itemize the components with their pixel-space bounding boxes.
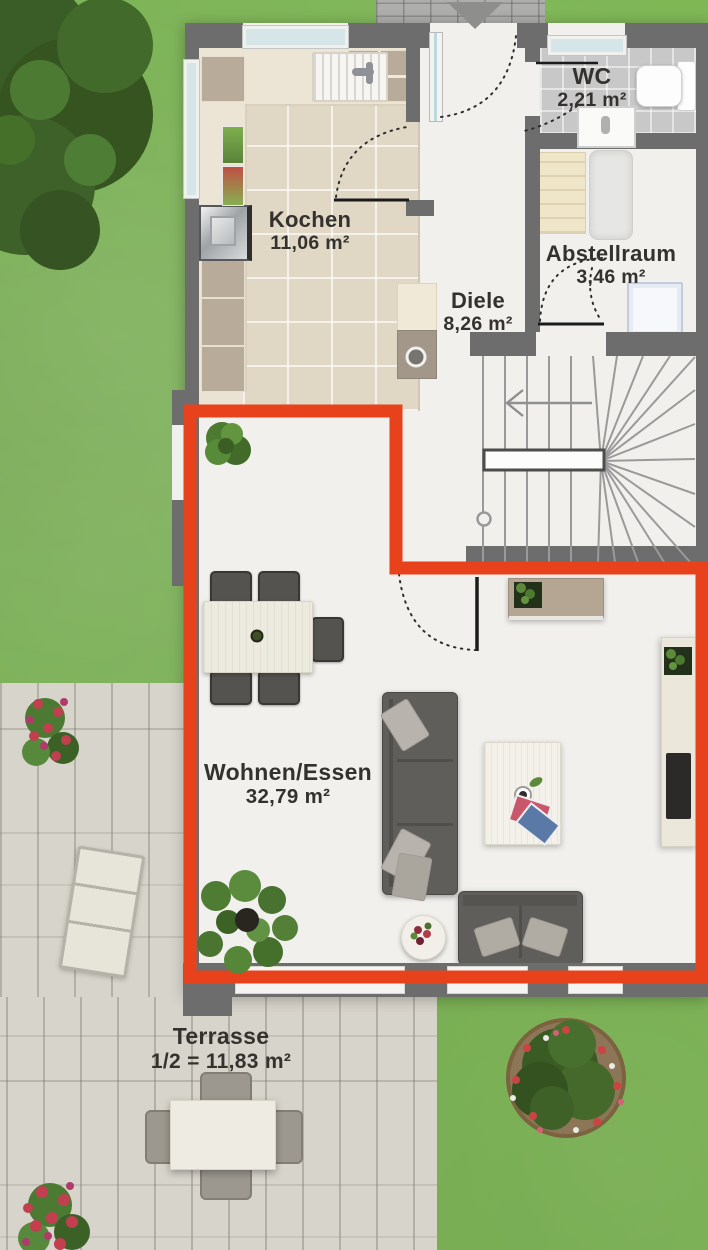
kitchen-cabinet xyxy=(201,56,245,102)
sofa-cushion-split xyxy=(397,823,453,826)
sofa-pillow xyxy=(391,852,432,901)
wall-top xyxy=(517,23,548,48)
wall-stub-outer xyxy=(172,390,185,425)
window-living-left xyxy=(172,425,185,500)
room-label-abstellraum: Abstellraum 3,46 m² xyxy=(546,242,676,288)
room-label-diele: Diele 8,26 m² xyxy=(443,289,512,335)
stove-burner xyxy=(210,216,236,246)
sideboard xyxy=(508,578,604,620)
room-name: Kochen xyxy=(269,208,351,233)
room-area: 2,21 m² xyxy=(557,90,626,112)
window-terrace xyxy=(568,966,623,994)
dining-chair xyxy=(258,670,300,705)
window-kitchen-top xyxy=(243,26,348,48)
room-name: Wohnen/Essen xyxy=(204,760,372,786)
sofa-cushion-split xyxy=(519,906,522,958)
wall-kitchen-stub xyxy=(406,200,434,216)
room-area: 11,06 m² xyxy=(269,233,351,255)
room-label-kochen: Kochen 11,06 m² xyxy=(269,208,351,254)
room-area: 32,79 m² xyxy=(204,786,372,809)
tv xyxy=(666,753,691,819)
wall-kitchen-hall xyxy=(406,46,420,122)
washbasin-tap-icon xyxy=(601,116,610,134)
side-table xyxy=(401,915,446,960)
front-door xyxy=(429,32,443,122)
room-area: 8,26 m² xyxy=(443,314,512,336)
hall-dresser-top xyxy=(397,283,437,332)
wall-right xyxy=(696,23,708,563)
room-name: Abstellraum xyxy=(546,242,676,267)
window-terrace xyxy=(235,966,405,994)
sofa-pillow xyxy=(521,917,568,958)
sofa-cushion-split xyxy=(397,759,453,762)
storage-cabinet xyxy=(589,150,633,240)
wall-stub-outer xyxy=(172,500,185,586)
room-name: Terrasse xyxy=(151,1024,291,1050)
window-wc-top xyxy=(548,36,626,55)
floorplan-canvas: Kochen 11,06 m² WC 2,21 m² Abstellraum 3… xyxy=(0,0,708,1250)
hall-dresser-base xyxy=(397,330,437,379)
kitchen-sink xyxy=(312,52,388,102)
room-label-wohnen-essen: Wohnen/Essen 32,79 m² xyxy=(204,760,372,809)
wall-wc-left xyxy=(525,46,540,62)
kitchen-tile-grid xyxy=(243,100,418,411)
terrace-table xyxy=(170,1100,276,1170)
room-label-terrasse: Terrasse 1/2 = 11,83 m² xyxy=(151,1024,291,1073)
room-area: 1/2 = 11,83 m² xyxy=(151,1050,291,1074)
dining-chair xyxy=(311,617,344,662)
dining-chair xyxy=(210,670,252,705)
toilet-bowl xyxy=(636,65,682,107)
sofa-small xyxy=(458,891,583,965)
kitchen-cabinet xyxy=(201,346,245,392)
room-name: WC xyxy=(557,64,626,90)
sofa-backrest-line xyxy=(463,895,577,906)
faucet-icon xyxy=(366,62,373,84)
wall-stairs-bottom xyxy=(466,546,708,563)
wall-storage-bottom xyxy=(470,332,536,356)
terrace-chair xyxy=(200,1165,252,1200)
cutting-board-greens xyxy=(222,126,244,164)
coffee-table xyxy=(484,742,561,845)
wall-storage-left xyxy=(525,149,540,332)
room-area: 3,46 m² xyxy=(546,267,676,289)
cutting-board-tomatoes xyxy=(222,166,244,206)
window-terrace xyxy=(447,966,528,994)
kitchen-cabinet xyxy=(201,298,245,346)
dining-table xyxy=(203,601,313,673)
wall-top xyxy=(348,23,430,48)
room-label-wc: WC 2,21 m² xyxy=(557,64,626,112)
sofa-pillow xyxy=(380,698,430,752)
window-kitchen-left xyxy=(184,60,199,198)
room-name: Diele xyxy=(443,289,512,314)
wall-storage-bottom xyxy=(606,332,708,356)
sofa-large xyxy=(382,692,458,895)
wall-pier-terrace xyxy=(183,980,232,1016)
washing-machine xyxy=(627,282,683,337)
sofa-pillow xyxy=(473,917,520,958)
